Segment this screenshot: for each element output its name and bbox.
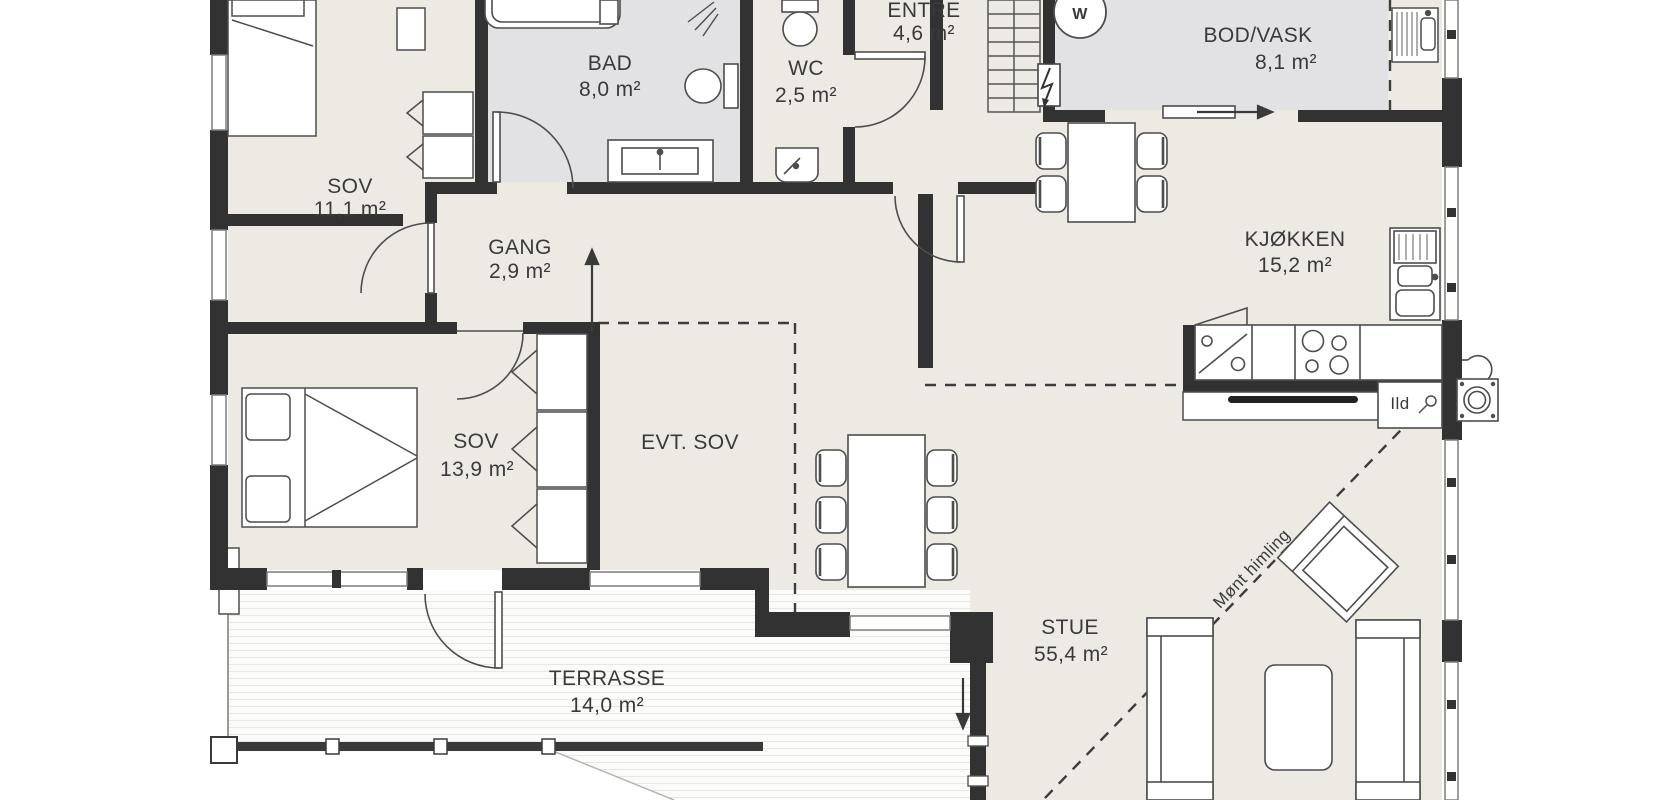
room-label-wc: WC [788, 57, 824, 81]
toilet-tank [782, 0, 818, 12]
pillow [232, 0, 304, 16]
dining-table [848, 435, 925, 587]
door-leaf [855, 52, 925, 59]
kitchen-table [1068, 123, 1135, 222]
dining-set [816, 435, 957, 587]
room-area-terrasse: 14,0 m² [570, 694, 644, 718]
fireplace-box [1378, 382, 1442, 428]
room-label-evtsov: EVT. SOV [641, 431, 739, 455]
nightstand [397, 8, 425, 50]
room-area-stue: 55,4 m² [1034, 643, 1108, 667]
room-label-entre: ENTRE [887, 0, 960, 23]
floor-plan: SOV 11,1 m² BAD 8,0 m² WC 2,5 m² ENTRE 4… [0, 0, 1670, 800]
door-leaf [493, 112, 500, 182]
door-leaf [957, 196, 964, 262]
floor-plan-drawing [0, 0, 1670, 800]
room-label-bad: BAD [588, 52, 632, 76]
toilet-tank [724, 64, 738, 108]
bod-sink-unit [1392, 8, 1438, 62]
shelf [600, 0, 618, 24]
railing-corner-post [211, 737, 237, 763]
chimney [1457, 356, 1498, 421]
door-leaf [495, 592, 502, 668]
room-label-gang: GANG [488, 236, 551, 260]
toilet-bowl [685, 69, 721, 103]
wardrobe [537, 412, 587, 487]
wardrobe [537, 334, 587, 410]
door-leaf [428, 223, 434, 293]
toilet-bowl [783, 12, 817, 46]
sofa [1356, 620, 1420, 800]
wardrobe [423, 92, 473, 134]
room-area-kjokken: 15,2 m² [1258, 254, 1332, 278]
coffee-table [1265, 665, 1332, 770]
wardrobe [423, 136, 473, 178]
room-label-sov1: SOV [327, 175, 373, 199]
room-area-sov2: 13,9 m² [440, 458, 514, 482]
room-area-bodvask: 8,1 m² [1255, 51, 1317, 75]
room-area-entre: 4,6 m² [893, 22, 955, 46]
counter-run [1195, 325, 1442, 380]
pillow [246, 394, 290, 440]
fireplace-label: Ild [1390, 394, 1409, 414]
room-area-wc: 2,5 m² [775, 84, 837, 108]
room-label-terrasse: TERRASSE [549, 667, 665, 691]
room-label-kjokken: KJØKKEN [1245, 228, 1346, 252]
room-label-stue: STUE [1041, 616, 1099, 640]
electrical-panel-icon [1038, 64, 1060, 108]
single-bed [228, 0, 316, 136]
room-label-sov2: SOV [453, 430, 499, 454]
room-area-sov1: 11,1 m² [314, 198, 386, 222]
sofa [1147, 618, 1213, 800]
room-area-gang: 2,9 m² [489, 260, 551, 284]
washer-label: W [1072, 6, 1088, 24]
wardrobe [537, 489, 587, 563]
room-area-bad: 8,0 m² [579, 78, 641, 102]
room-label-bodvask: BOD/VASK [1203, 24, 1312, 48]
pillow [246, 476, 290, 522]
